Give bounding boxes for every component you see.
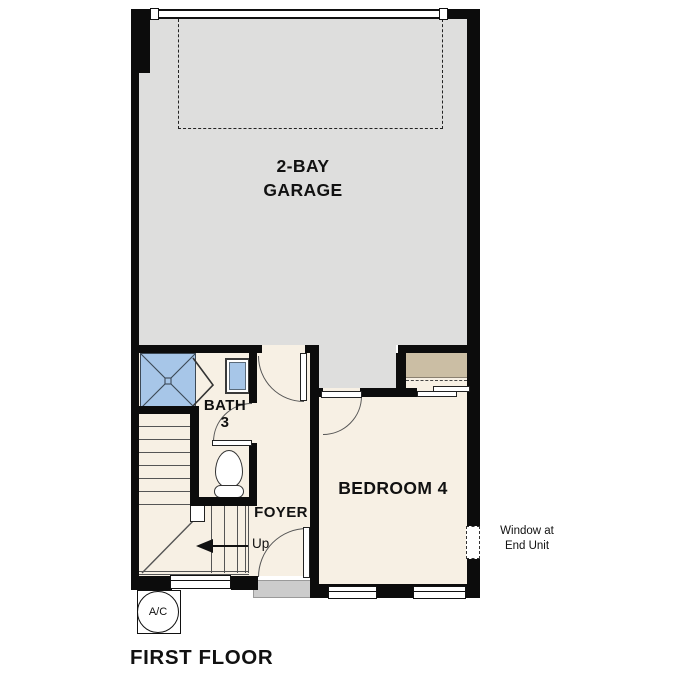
foyer-label: FOYER (250, 504, 312, 521)
stairs-newel-post (190, 505, 205, 522)
shower (140, 353, 196, 409)
garage-entry-door-leaf (300, 353, 307, 401)
page-title: FIRST FLOOR (130, 646, 273, 670)
closet-shelf (406, 353, 467, 378)
shower-x-pattern (141, 354, 195, 408)
stair-window (170, 575, 231, 589)
front-door-leaf (303, 527, 310, 578)
window-note: Window at End Unit (483, 524, 571, 554)
wall-bedroom-top (360, 388, 417, 397)
wall-bottom-left-b (231, 576, 258, 590)
bedroom-label: BEDROOM 4 (319, 478, 467, 499)
closet-bypass-door-front (417, 391, 457, 397)
bath-label: BATH (198, 397, 252, 414)
entry-threshold (253, 580, 313, 598)
garage-label-line2: GARAGE (263, 180, 342, 200)
garage-label-line1: 2-BAY (277, 156, 330, 176)
window-note-line1: Window at (500, 525, 554, 537)
bedroom-window-left (328, 586, 377, 599)
wall-bath-bottom (190, 497, 257, 506)
wall-garage-bottom-right (398, 345, 480, 353)
up-arrow-head (196, 539, 213, 553)
bath-number: 3 (198, 414, 252, 431)
garage-entry-opening-floor (262, 345, 305, 353)
bedroom-door-leaf (321, 391, 362, 398)
garage-floor-notch (319, 345, 396, 388)
wall-right-upper (467, 9, 480, 527)
ac-unit-circle: A/C (137, 591, 179, 633)
garage-door-cap-left (150, 8, 159, 20)
floor-plan: 2-BAY GARAGE BATH 3 BEDROOM 4 FOYER Up W… (0, 0, 687, 687)
bath-sink (225, 358, 250, 394)
garage-door-track-dashed (178, 19, 443, 129)
ac-label: A/C (149, 606, 167, 618)
bedroom-window-right (413, 586, 466, 599)
stairs-upper-run (139, 413, 190, 506)
wall-garage-bottom-left (131, 345, 262, 353)
toilet-bowl (215, 450, 243, 488)
wall-shower-bottom (131, 406, 199, 414)
wall-bottom-left-a (131, 576, 172, 590)
closet-rod-dashed-line (406, 380, 467, 381)
garage-door-cap-right (439, 8, 448, 20)
up-arrow-line (213, 545, 248, 547)
up-label: Up (252, 536, 269, 551)
wall-left (131, 9, 139, 590)
garage-overhead-door (153, 9, 445, 19)
window-note-line2: End Unit (505, 540, 549, 552)
stairs-foyer-edge (245, 505, 249, 573)
garage-label: 2-BAY GARAGE (139, 155, 467, 202)
wall-bath-hall-upper (249, 353, 257, 403)
wall-bedroom-left (310, 345, 319, 592)
bath-sink-basin (229, 362, 246, 390)
end-unit-window-dashed (466, 526, 480, 559)
bath-door-leaf (212, 440, 252, 446)
